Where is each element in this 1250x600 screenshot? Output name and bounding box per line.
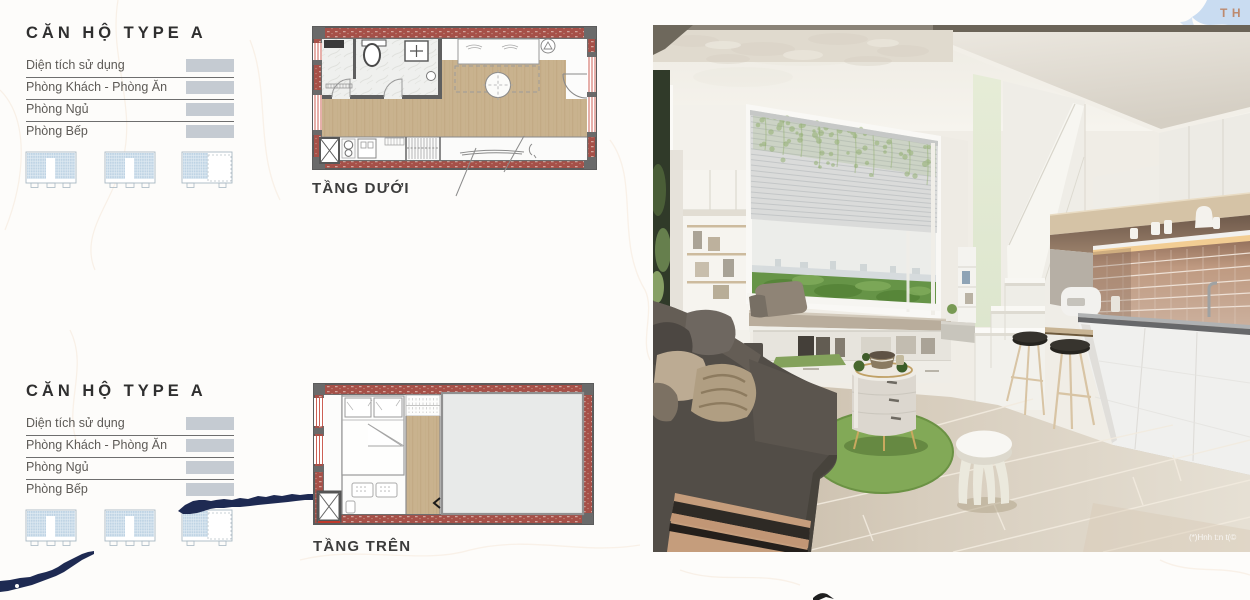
svg-text:(*)Hnh t:n t(©: (*)Hnh t:n t(© [1189, 533, 1236, 542]
svg-text:TH: TH [1220, 6, 1245, 20]
